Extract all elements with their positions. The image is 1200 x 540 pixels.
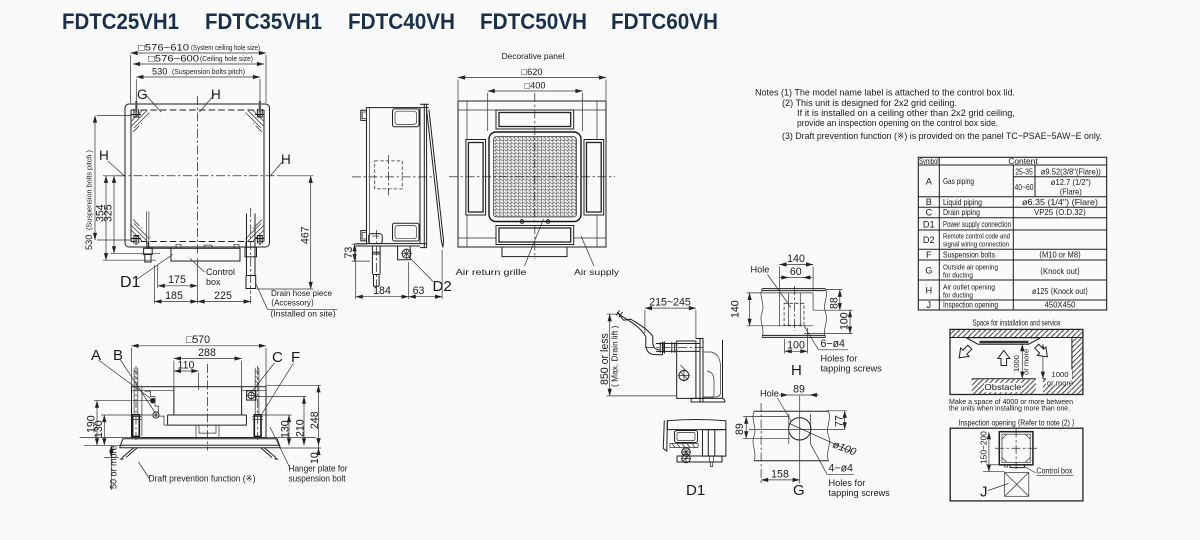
svg-text:Notes (1) The model name labe: Notes (1) The model name label is attach… (755, 88, 1015, 98)
svg-text:ø12.7 (1/2"): ø12.7 (1/2") (1051, 177, 1091, 187)
svg-text:Symbol: Symbol (919, 156, 939, 166)
svg-text:( Max. Drain lift ): ( Max. Drain lift ) (610, 325, 620, 387)
svg-text:□576~610: □576~610 (138, 43, 189, 53)
svg-text:D1: D1 (686, 482, 705, 499)
svg-text:A: A (91, 347, 101, 364)
svg-text:Holes for: Holes for (821, 354, 858, 364)
svg-text:140: 140 (730, 300, 742, 318)
svg-text:Holes for: Holes for (829, 478, 866, 488)
svg-text:G: G (925, 266, 932, 276)
svg-text:(2) This unit is designed for: (2) This unit is designed for 2x2 grid c… (782, 98, 957, 108)
svg-text:4−ø4: 4−ø4 (829, 463, 854, 475)
svg-text:⟨M10 or M8⟩: ⟨M10 or M8⟩ (1039, 249, 1081, 259)
svg-text:325: 325 (103, 204, 115, 222)
svg-text:(Suspension bolts pitch ): (Suspension bolts pitch ) (85, 150, 94, 230)
svg-text:6−ø4: 6−ø4 (821, 338, 846, 350)
svg-text:tapping screws: tapping screws (829, 488, 891, 498)
svg-text:Drain hose piece: Drain hose piece (271, 288, 332, 298)
svg-text:J: J (927, 300, 932, 310)
svg-text:100: 100 (787, 340, 805, 352)
svg-text:⟨Accessory⟩: ⟨Accessory⟩ (271, 298, 314, 308)
svg-text:63: 63 (413, 285, 425, 297)
svg-text:184: 184 (373, 285, 391, 297)
svg-text:H: H (791, 362, 802, 379)
svg-text:D1: D1 (923, 220, 935, 230)
svg-text:ø100: ø100 (831, 439, 858, 459)
svg-text:for ducting: for ducting (943, 270, 973, 279)
svg-text:Space for installation and ser: Space for installation and service (973, 318, 1061, 328)
svg-text:25-35: 25-35 (1015, 166, 1033, 176)
svg-text:C: C (925, 208, 932, 218)
svg-text:provide an inspection opening: provide an inspection opening on the con… (797, 118, 998, 128)
svg-text:215~245: 215~245 (649, 297, 691, 309)
svg-text:A: A (926, 177, 933, 187)
svg-text:for ducting: for ducting (943, 290, 973, 299)
svg-text:175: 175 (168, 274, 186, 286)
svg-text:B: B (926, 197, 932, 207)
svg-text:(3) Draft prevention function: (3) Draft prevention function (※) is pro… (782, 131, 1102, 141)
svg-text:Decorative panel: Decorative panel (502, 51, 565, 61)
svg-text:H: H (99, 148, 109, 163)
svg-text:40~60: 40~60 (1015, 182, 1034, 192)
svg-text:⟨Installed on site⟩: ⟨Installed on site⟩ (270, 309, 336, 319)
svg-text:If it is installed on a ceilin: If it is installed on a ceiling other th… (797, 108, 1015, 118)
svg-text:467: 467 (300, 226, 312, 244)
svg-text:50 or more: 50 or more (109, 445, 119, 489)
svg-text:1000: 1000 (1012, 355, 1021, 372)
svg-text:130: 130 (280, 420, 292, 438)
svg-text:Gas piping: Gas piping (943, 176, 974, 186)
svg-text:88: 88 (829, 297, 841, 309)
svg-text:D2: D2 (923, 235, 935, 245)
svg-text:(Flare): (Flare) (1060, 187, 1082, 197)
svg-text:Draft prevention function (※): Draft prevention function (※) (149, 474, 256, 484)
svg-text:140: 140 (787, 253, 805, 265)
svg-text:158: 158 (771, 468, 789, 480)
svg-text:210: 210 (295, 419, 307, 437)
svg-text:89: 89 (734, 423, 746, 435)
svg-text:225: 225 (214, 290, 232, 302)
svg-text:Air supply: Air supply (574, 267, 620, 277)
svg-text:F: F (926, 250, 932, 260)
svg-text:D2: D2 (433, 278, 452, 295)
svg-text:□620: □620 (522, 67, 543, 77)
svg-text:J: J (980, 484, 988, 501)
svg-text:suspension bolt: suspension bolt (289, 474, 346, 484)
svg-text:Control box: Control box (1036, 465, 1073, 475)
svg-text:60: 60 (790, 266, 802, 278)
svg-text:530: 530 (84, 235, 94, 250)
svg-text:73: 73 (343, 247, 355, 259)
svg-text:FDTC50VH: FDTC50VH (480, 9, 587, 34)
svg-text:(System ceiling hole size): (System ceiling hole size) (191, 43, 260, 52)
svg-text:Control: Control (206, 267, 235, 277)
svg-text:G: G (793, 482, 805, 499)
svg-text:VP25 ⟨O.D.32⟩: VP25 ⟨O.D.32⟩ (1034, 207, 1086, 217)
svg-text:F: F (291, 349, 300, 366)
svg-text:FDTC35VH1: FDTC35VH1 (205, 9, 322, 34)
svg-text:150~200: 150~200 (979, 431, 989, 464)
svg-text:530: 530 (152, 67, 167, 77)
svg-text:Power supply connection: Power supply connection (943, 219, 1011, 229)
svg-text:or more: or more (1047, 379, 1073, 388)
svg-text:ø125 ⟨Knock out⟩: ø125 ⟨Knock out⟩ (1032, 286, 1088, 296)
svg-text:Content: Content (1008, 156, 1038, 166)
svg-text:FDTC60VH: FDTC60VH (611, 9, 718, 34)
svg-text:or more: or more (1022, 349, 1031, 375)
svg-text:Hole: Hole (751, 265, 770, 275)
svg-text:the units when installing more: the units when installing more than one. (949, 403, 1070, 412)
svg-text:□400: □400 (525, 81, 546, 91)
svg-text:Inspection opening ⟨Refer to n: Inspection opening ⟨Refer to note (2) ⟩ (959, 417, 1075, 427)
svg-text:ø6.35 (1/4") (Flare): ø6.35 (1/4") (Flare) (1022, 197, 1098, 207)
svg-text:Liquid piping: Liquid piping (943, 197, 982, 207)
svg-text:100: 100 (839, 312, 851, 330)
svg-text:(Ceiling hole size): (Ceiling hole size) (200, 54, 253, 63)
svg-text:Air return grille: Air return grille (456, 267, 527, 277)
svg-text:248: 248 (309, 411, 321, 429)
svg-text:box: box (206, 277, 221, 287)
svg-text:130: 130 (93, 420, 105, 438)
svg-text:□570: □570 (186, 334, 210, 346)
svg-text:185: 185 (165, 290, 183, 302)
svg-text:Suspension bolts: Suspension bolts (943, 249, 995, 259)
svg-text:H: H (211, 87, 221, 102)
svg-text:H: H (281, 152, 291, 167)
svg-text:ø9.52(3/8"(Flare)): ø9.52(3/8"(Flare)) (1041, 166, 1101, 176)
svg-text:(Suspension bolts pitch): (Suspension bolts pitch) (172, 67, 245, 76)
svg-text:signal wiring connection: signal wiring connection (943, 240, 1009, 249)
svg-text:Hanger plate for: Hanger plate for (289, 464, 348, 474)
svg-text:G: G (137, 87, 148, 102)
svg-text:10: 10 (309, 452, 321, 464)
svg-text:FDTC40VH: FDTC40VH (348, 9, 455, 34)
svg-text:C: C (272, 349, 283, 366)
svg-text:89: 89 (793, 384, 805, 396)
svg-text:⟨Knock out⟩: ⟨Knock out⟩ (1040, 266, 1080, 276)
svg-text:110: 110 (178, 360, 195, 372)
svg-text:288: 288 (198, 347, 216, 359)
svg-text:450X450: 450X450 (1045, 299, 1076, 309)
svg-text:Inspection opening: Inspection opening (943, 299, 998, 309)
svg-text:Drain piping: Drain piping (943, 207, 980, 217)
svg-text:FDTC25VH1: FDTC25VH1 (62, 9, 179, 34)
svg-text:□576~600: □576~600 (148, 54, 199, 64)
svg-text:Hole: Hole (760, 389, 779, 399)
svg-text:H: H (925, 286, 932, 296)
svg-text:D1: D1 (120, 274, 141, 291)
svg-text:Obstacle: Obstacle (985, 383, 1022, 392)
svg-text:tapping screws: tapping screws (821, 364, 883, 374)
svg-text:77: 77 (834, 415, 846, 427)
